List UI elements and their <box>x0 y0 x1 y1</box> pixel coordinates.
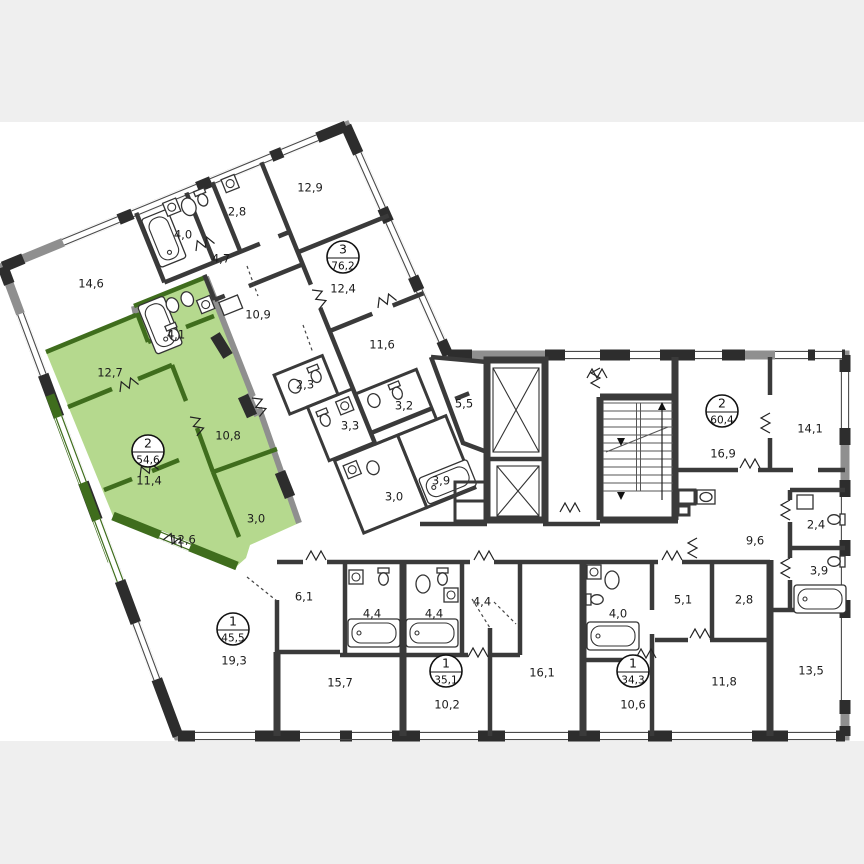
room-area-label: 16,9 <box>710 447 736 461</box>
apartment-badge[interactable]: 135,1 <box>430 655 462 687</box>
room-area-label: 12,7 <box>97 366 123 380</box>
badge-total-area: 35,1 <box>434 675 457 687</box>
bathtub-icon <box>406 619 458 647</box>
room-area-label: 2,4 <box>807 518 825 532</box>
room-area-label: 3,3 <box>341 419 359 433</box>
room-area-label: 4,4 <box>363 607 381 621</box>
bathtub-icon <box>794 585 846 613</box>
badge-total-area: 76,2 <box>331 261 354 273</box>
room-area-label: 10,9 <box>245 308 271 322</box>
badge-room-count: 1 <box>442 656 450 671</box>
toilet-icon <box>586 594 603 605</box>
washing-machine-icon <box>587 565 601 579</box>
room-area-label: 2,3 <box>296 378 314 392</box>
toilet-icon <box>437 568 448 585</box>
room-area-label: 5,5 <box>455 397 473 411</box>
apartment-badge[interactable]: 376,2 <box>327 241 359 273</box>
room-area-label: 3,9 <box>810 564 828 578</box>
room-area-label: 11,8 <box>711 675 737 689</box>
washing-machine-icon <box>444 588 458 602</box>
room-area-label: 19,3 <box>221 654 247 668</box>
toilet-icon <box>828 556 845 567</box>
room-area-label: 3,9 <box>432 474 450 488</box>
room-area-label: 15,7 <box>327 676 353 690</box>
floor-plan-canvas: 12,92,84,04,714,612,410,911,64,112,72,33… <box>0 0 864 864</box>
room-area-label: 5,1 <box>674 593 692 607</box>
room-area-label: 16,1 <box>529 666 555 680</box>
room-area-label: 10,6 <box>620 698 646 712</box>
badge-room-count: 1 <box>629 656 637 671</box>
room-area-label: 11,4 <box>136 474 162 488</box>
toilet-icon <box>828 514 845 525</box>
room-area-label: 4,4 <box>473 595 491 609</box>
badge-room-count: 2 <box>144 436 152 451</box>
badge-room-count: 2 <box>718 396 726 411</box>
floor-plan: 12,92,84,04,714,612,410,911,64,112,72,33… <box>0 0 864 864</box>
room-area-label: 3,0 <box>385 490 403 504</box>
room-area-label: 4,7 <box>212 252 230 266</box>
room-area-label: 4,0 <box>609 607 627 621</box>
bathtub-icon <box>348 619 400 647</box>
apartment-badge[interactable]: 254,6 <box>132 435 164 467</box>
room-area-label: 4,4 <box>425 607 443 621</box>
room-area-label: 9,6 <box>746 534 764 548</box>
room-area-label: 6,1 <box>295 590 313 604</box>
room-area-label: 3,2 <box>395 399 413 413</box>
room-area-label: 12,6 <box>170 533 196 547</box>
sink-icon <box>700 493 712 502</box>
washing-machine-icon <box>349 570 363 584</box>
toilet-icon <box>378 568 389 585</box>
sink-icon <box>605 571 619 589</box>
room-area-label: 2,8 <box>735 593 753 607</box>
room-area-label: 13,5 <box>798 664 824 678</box>
room-area-label: 12,9 <box>297 181 323 195</box>
badge-room-count: 3 <box>339 242 347 257</box>
sink-cabinet-icon <box>797 495 813 509</box>
badge-total-area: 34,3 <box>621 675 644 687</box>
apartment-badge[interactable]: 134,3 <box>617 655 649 687</box>
room-area-label: 2,8 <box>228 205 246 219</box>
badge-total-area: 45,5 <box>221 633 244 645</box>
sink-icon <box>416 575 430 593</box>
room-area-label: 11,6 <box>369 338 395 352</box>
room-area-label: 12,4 <box>330 282 356 296</box>
bathtub-icon <box>587 622 639 650</box>
room-area-label: 14,1 <box>797 422 823 436</box>
room-area-label: 10,8 <box>215 429 241 443</box>
badge-total-area: 60,4 <box>710 415 734 427</box>
room-area-label: 3,0 <box>247 512 265 526</box>
room-area-label: 14,6 <box>78 277 104 291</box>
room-area-label: 4,0 <box>174 228 192 242</box>
apartment-badge[interactable]: 145,5 <box>217 613 249 645</box>
room-area-label: 10,2 <box>434 698 460 712</box>
badge-total-area: 54,6 <box>136 455 160 467</box>
apartment-badge[interactable]: 260,4 <box>706 395 738 427</box>
room-area-label: 4,1 <box>167 328 185 342</box>
badge-room-count: 1 <box>229 614 237 629</box>
